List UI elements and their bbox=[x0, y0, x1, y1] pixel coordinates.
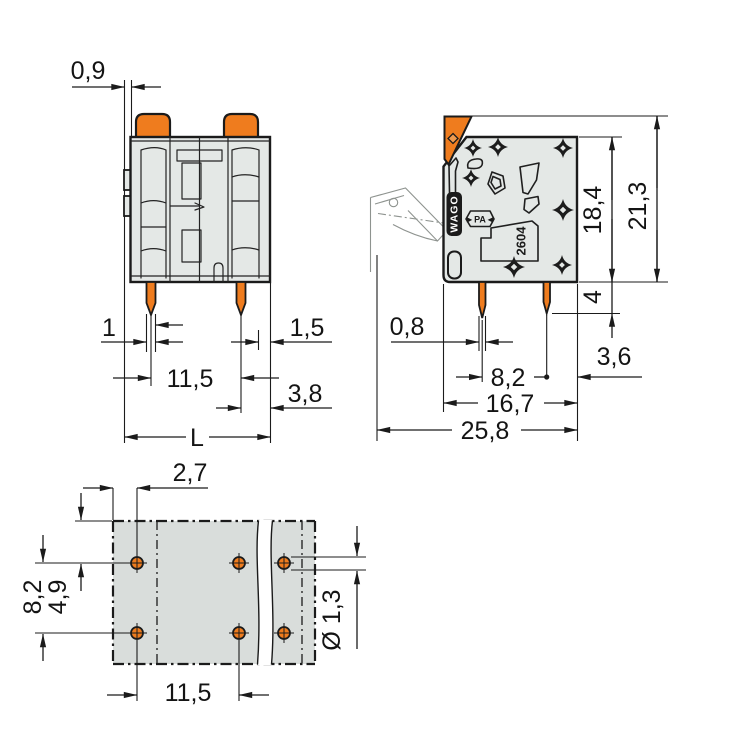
drawing-canvas: 0,9 1 1,5 11,5 3,8 L bbox=[0, 0, 750, 750]
side-view: WAGO ►PA◄ 2604 18,4 21,3 4 0,8 8,2 bbox=[371, 116, 669, 445]
dim-fp-hole-diameter: Ø 1,3 bbox=[318, 589, 346, 650]
dim-front-pin-pitch: 11,5 bbox=[167, 365, 214, 393]
dim-side-housing-height: 18,4 bbox=[579, 186, 607, 235]
dim-fp-row-pitch: 8,2 bbox=[19, 580, 47, 615]
dim-fp-hole-pitch: 11,5 bbox=[165, 679, 212, 707]
footprint-view: 2,7 8,2 4,9 11,5 Ø 1,3 bbox=[19, 459, 366, 707]
side-pin-back bbox=[544, 282, 551, 314]
front-pin-right bbox=[237, 282, 246, 315]
operating-tool-ghost bbox=[371, 188, 448, 272]
dim-front-length: L bbox=[190, 424, 204, 452]
footprint-body bbox=[113, 521, 315, 664]
dim-side-total-height: 21,3 bbox=[624, 182, 652, 231]
dim-side-total-depth: 25,8 bbox=[461, 417, 510, 445]
dim-front-pin-to-edge: 3,8 bbox=[288, 380, 323, 408]
front-housing bbox=[131, 137, 271, 282]
front-push-button-left bbox=[136, 114, 170, 138]
pa-material-text: ►PA◄ bbox=[465, 215, 495, 225]
technical-drawing: 0,9 1 1,5 11,5 3,8 L bbox=[0, 0, 750, 750]
dim-front-tab-offset: 0,9 bbox=[71, 57, 106, 85]
side-pin-front bbox=[479, 282, 486, 318]
front-view: 0,9 1 1,5 11,5 3,8 L bbox=[71, 57, 332, 452]
dim-fp-edge-to-hole: 2,7 bbox=[173, 459, 208, 487]
dim-side-pin-thickness: 0,8 bbox=[390, 313, 425, 341]
dim-dot-terminator bbox=[544, 374, 549, 379]
break-gap bbox=[257, 520, 273, 665]
front-push-button-right bbox=[224, 114, 258, 138]
dim-fp-edge-to-row: 4,9 bbox=[44, 580, 72, 615]
series-number-text: 2604 bbox=[514, 226, 529, 256]
dim-side-pin-length: 4 bbox=[579, 290, 607, 304]
wago-logo-text: WAGO bbox=[448, 195, 460, 232]
dim-front-edge-wall: 1,5 bbox=[290, 314, 325, 342]
dim-side-pin-to-back: 3,6 bbox=[597, 343, 632, 371]
dim-front-pin-width: 1 bbox=[102, 314, 116, 342]
dim-side-pin-row-pitch: 8,2 bbox=[491, 364, 526, 392]
dim-side-housing-depth: 16,7 bbox=[486, 390, 535, 418]
front-pin-left bbox=[147, 282, 156, 315]
